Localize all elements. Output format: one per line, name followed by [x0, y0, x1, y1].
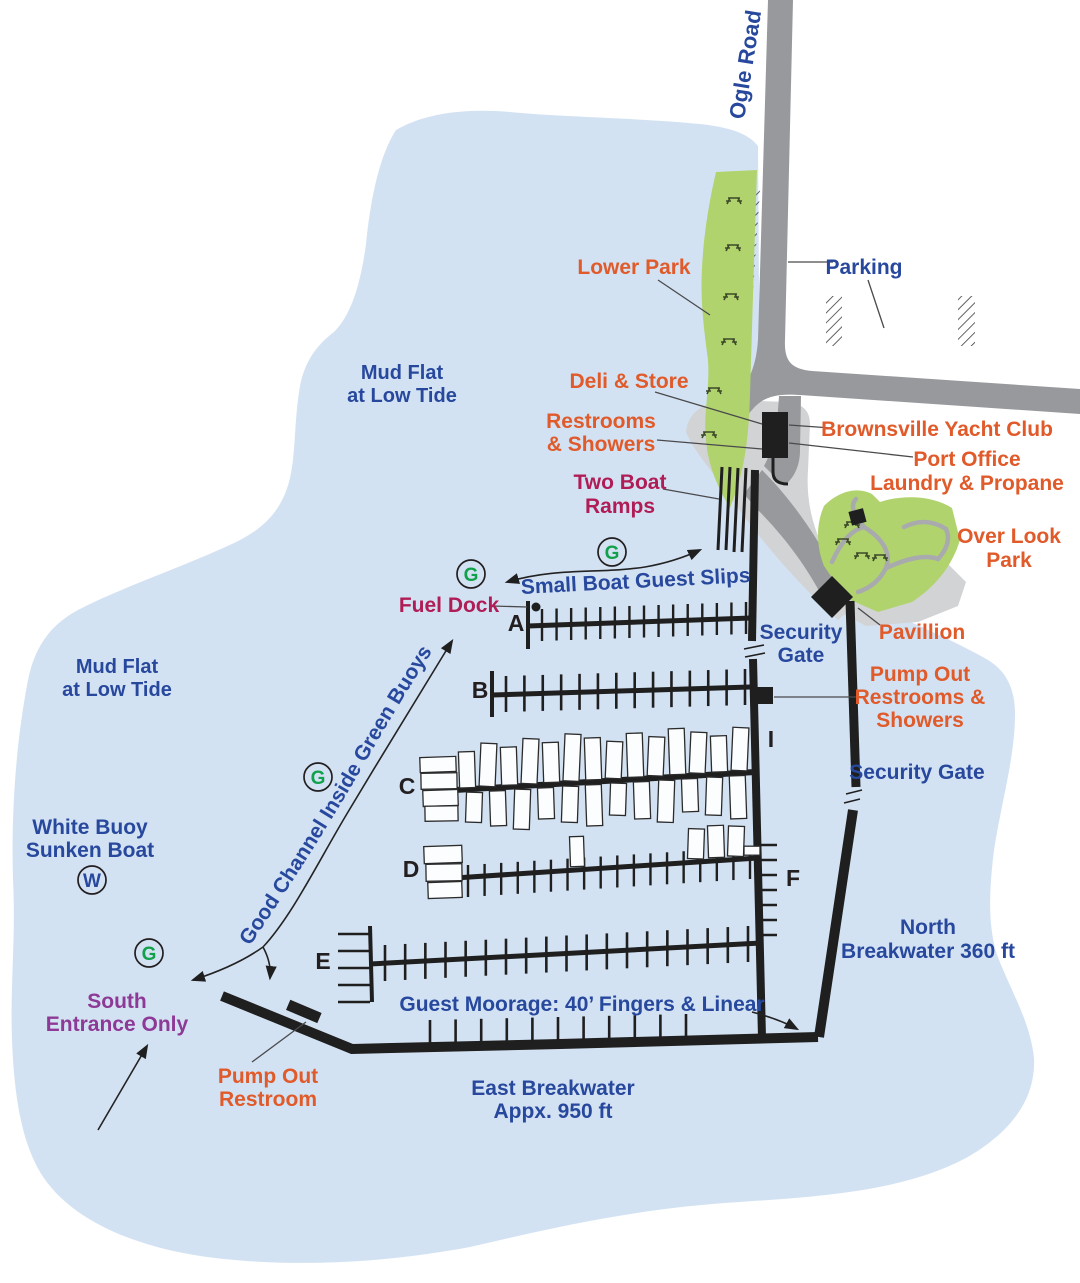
brownsville-yacht-club-label: Brownsville Yacht Club — [821, 418, 1053, 441]
boathouse — [727, 826, 744, 857]
dock-a-label: A — [508, 610, 525, 636]
security-gate-upper-label-2: Gate — [778, 644, 825, 667]
parking-hatch-2 — [958, 296, 975, 346]
deli-store-label: Deli & Store — [569, 370, 688, 393]
mud-flat-top-label-1: Mud Flat — [361, 362, 444, 384]
lower-park-label: Lower Park — [577, 256, 691, 279]
east-breakwater-label-1: East Breakwater — [471, 1077, 634, 1100]
boathouse — [563, 734, 581, 782]
boathouse — [420, 756, 457, 772]
boathouse — [668, 728, 686, 775]
svg-text:G: G — [605, 543, 620, 564]
dock-e-label: E — [315, 948, 330, 974]
boathouse — [605, 741, 623, 779]
boathouse — [421, 773, 457, 790]
parking-hatch-1 — [826, 296, 842, 346]
restrooms-label-1: Restrooms — [546, 410, 656, 433]
boathouse — [423, 789, 459, 806]
boathouse — [500, 747, 517, 786]
svg-text:G: G — [311, 768, 326, 789]
boathouse — [513, 789, 530, 830]
dock-i-label: I — [768, 726, 774, 752]
boathouse — [585, 784, 602, 826]
marina-map-svg: Ogle Road Lower Park Parking Mud Flat at… — [0, 0, 1080, 1283]
pump-out-rs-label-3: Showers — [876, 709, 964, 732]
boathouse — [458, 751, 475, 788]
dock-c-label: C — [399, 773, 416, 799]
pump-out-restroom-label-1: Pump Out — [218, 1065, 318, 1088]
svg-text:W: W — [83, 871, 101, 892]
dock-b-label: B — [472, 677, 489, 703]
east-breakwater-label-2: Appx. 950 ft — [493, 1100, 612, 1123]
boathouse — [465, 792, 482, 823]
south-entrance-label-2: Entrance Only — [46, 1013, 189, 1036]
boathouse — [424, 845, 463, 863]
boathouse — [633, 781, 650, 819]
ogle-road — [758, 0, 793, 340]
pump-out-restroom-label-2: Restroom — [219, 1088, 317, 1111]
main-pier — [752, 470, 755, 641]
security-gate-lower-label: Security Gate — [849, 761, 984, 784]
white-buoy-label-1: White Buoy — [32, 816, 148, 839]
restrooms-label-2: & Showers — [547, 433, 656, 456]
boathouse — [681, 778, 698, 812]
mud-flat-left-label-1: Mud Flat — [76, 656, 159, 678]
security-gate-upper-label-1: Security — [760, 621, 843, 644]
two-boat-ramps-label-2: Ramps — [585, 495, 655, 518]
mud-flat-left-label-2: at Low Tide — [62, 679, 172, 701]
boathouse — [584, 738, 601, 781]
boathouse — [729, 775, 746, 819]
boathouse — [626, 733, 644, 778]
over-look-park-label-1: Over Look — [957, 525, 1061, 548]
boathouse — [647, 737, 665, 777]
mud-flat-top-label-2: at Low Tide — [347, 385, 457, 407]
pump-out-station — [756, 687, 773, 704]
boathouse — [489, 791, 506, 827]
boathouse — [479, 743, 497, 787]
boathouse — [561, 786, 578, 823]
south-entrance-label-1: South — [87, 990, 146, 1013]
port-office-label-1: Port Office — [913, 448, 1020, 471]
boathouse — [521, 738, 539, 784]
pump-out-rs-label-1: Pump Out — [870, 663, 970, 686]
boathouse — [705, 777, 722, 816]
over-look-park-label-2: Park — [986, 549, 1032, 572]
boathouse — [425, 806, 458, 822]
boathouse — [687, 829, 704, 860]
boathouse — [428, 881, 463, 898]
port-office-building — [762, 412, 788, 458]
boathouse — [731, 727, 749, 771]
fuel-dock-point — [532, 603, 541, 612]
boathouse — [689, 732, 707, 774]
boathouse — [542, 742, 559, 783]
boathouse — [537, 788, 554, 820]
fuel-dock-label: Fuel Dock — [399, 594, 500, 617]
dock-f-label: F — [786, 865, 800, 891]
ogle-road-label: Ogle Road — [724, 8, 766, 121]
boathouse — [657, 780, 674, 823]
boathouse — [426, 864, 462, 882]
pump-out-rs-label-2: Restrooms & — [855, 686, 986, 709]
white-buoy-label-2: Sunken Boat — [26, 839, 154, 862]
parking-label: Parking — [825, 256, 902, 279]
boathouse — [569, 836, 584, 866]
guest-moorage-label: Guest Moorage: 40’ Fingers & Linear — [399, 993, 764, 1016]
svg-text:G: G — [464, 565, 479, 586]
dock-e-cap — [370, 926, 372, 1002]
marina-map: Ogle Road Lower Park Parking Mud Flat at… — [0, 0, 1080, 1283]
boathouse — [609, 783, 626, 816]
north-breakwater-label-1: North — [900, 916, 956, 939]
two-boat-ramps-label-1: Two Boat — [574, 471, 667, 494]
pavillion-label: Pavillion — [879, 621, 965, 644]
boathouse — [744, 846, 760, 855]
svg-text:G: G — [142, 944, 157, 965]
port-office-label-2: Laundry & Propane — [870, 472, 1064, 495]
boathouse — [710, 736, 727, 773]
north-breakwater-label-2: Breakwater 360 ft — [841, 940, 1015, 963]
boathouse — [707, 825, 724, 858]
dock-d-label: D — [403, 856, 420, 882]
